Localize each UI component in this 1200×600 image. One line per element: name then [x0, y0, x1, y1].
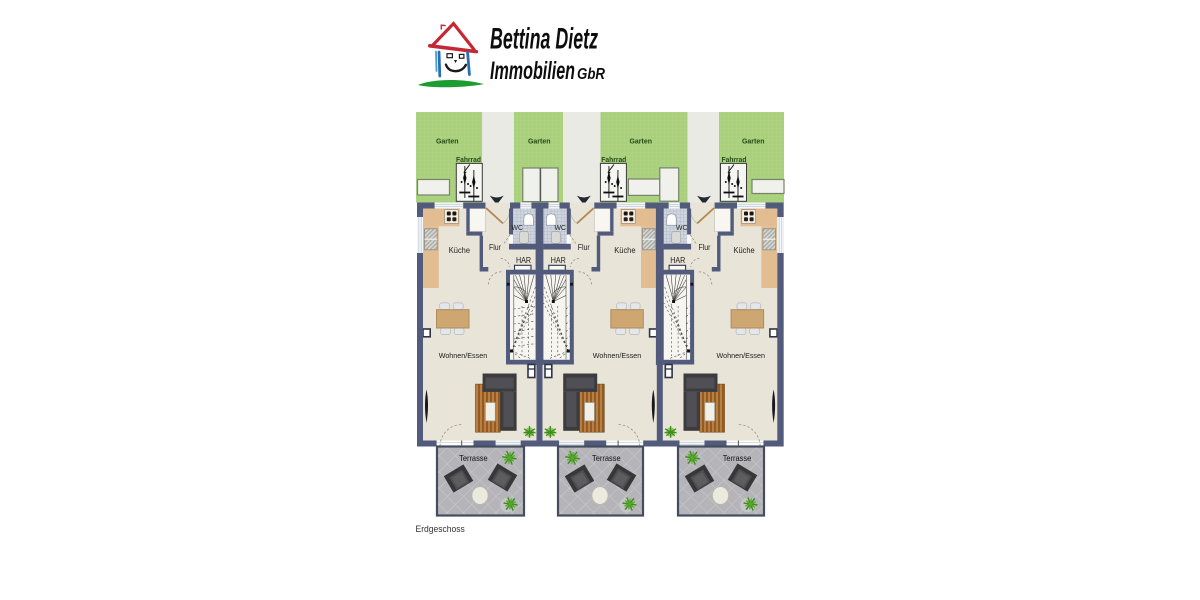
svg-text:Garten: Garten: [742, 137, 765, 146]
svg-text:HAR: HAR: [670, 256, 685, 265]
svg-text:Wohnen/Essen: Wohnen/Essen: [717, 351, 766, 360]
svg-text:Terrasse: Terrasse: [592, 454, 621, 463]
svg-text:Garten: Garten: [630, 137, 653, 146]
svg-text:HAR: HAR: [516, 256, 531, 265]
svg-text:WC: WC: [676, 223, 688, 232]
svg-text:Terrasse: Terrasse: [459, 454, 488, 463]
svg-text:Terrasse: Terrasse: [723, 454, 752, 463]
svg-text:WC: WC: [555, 223, 567, 232]
svg-text:HAR: HAR: [551, 256, 566, 265]
svg-text:Garten: Garten: [528, 137, 551, 146]
svg-text:Garten: Garten: [436, 137, 459, 146]
svg-text:Wohnen/Essen: Wohnen/Essen: [439, 351, 488, 360]
svg-text:Fahrrad: Fahrrad: [456, 155, 481, 164]
svg-text:Wohnen/Essen: Wohnen/Essen: [593, 351, 642, 360]
svg-text:WC: WC: [512, 223, 524, 232]
svg-text:Flur: Flur: [489, 243, 501, 252]
svg-text:Bettina Dietz: Bettina Dietz: [490, 23, 598, 56]
svg-text:Küche: Küche: [734, 246, 756, 255]
svg-text:Flur: Flur: [578, 243, 590, 252]
svg-text:Fahrrad: Fahrrad: [722, 155, 747, 164]
svg-text:Erdgeschoss: Erdgeschoss: [416, 524, 466, 534]
svg-text:Immobilien: Immobilien: [490, 57, 575, 85]
svg-text:Fahrrad: Fahrrad: [601, 155, 626, 164]
svg-text:Küche: Küche: [614, 246, 636, 255]
svg-text:Küche: Küche: [449, 246, 471, 255]
svg-text:Flur: Flur: [699, 243, 711, 252]
svg-text:GbR: GbR: [577, 66, 606, 83]
